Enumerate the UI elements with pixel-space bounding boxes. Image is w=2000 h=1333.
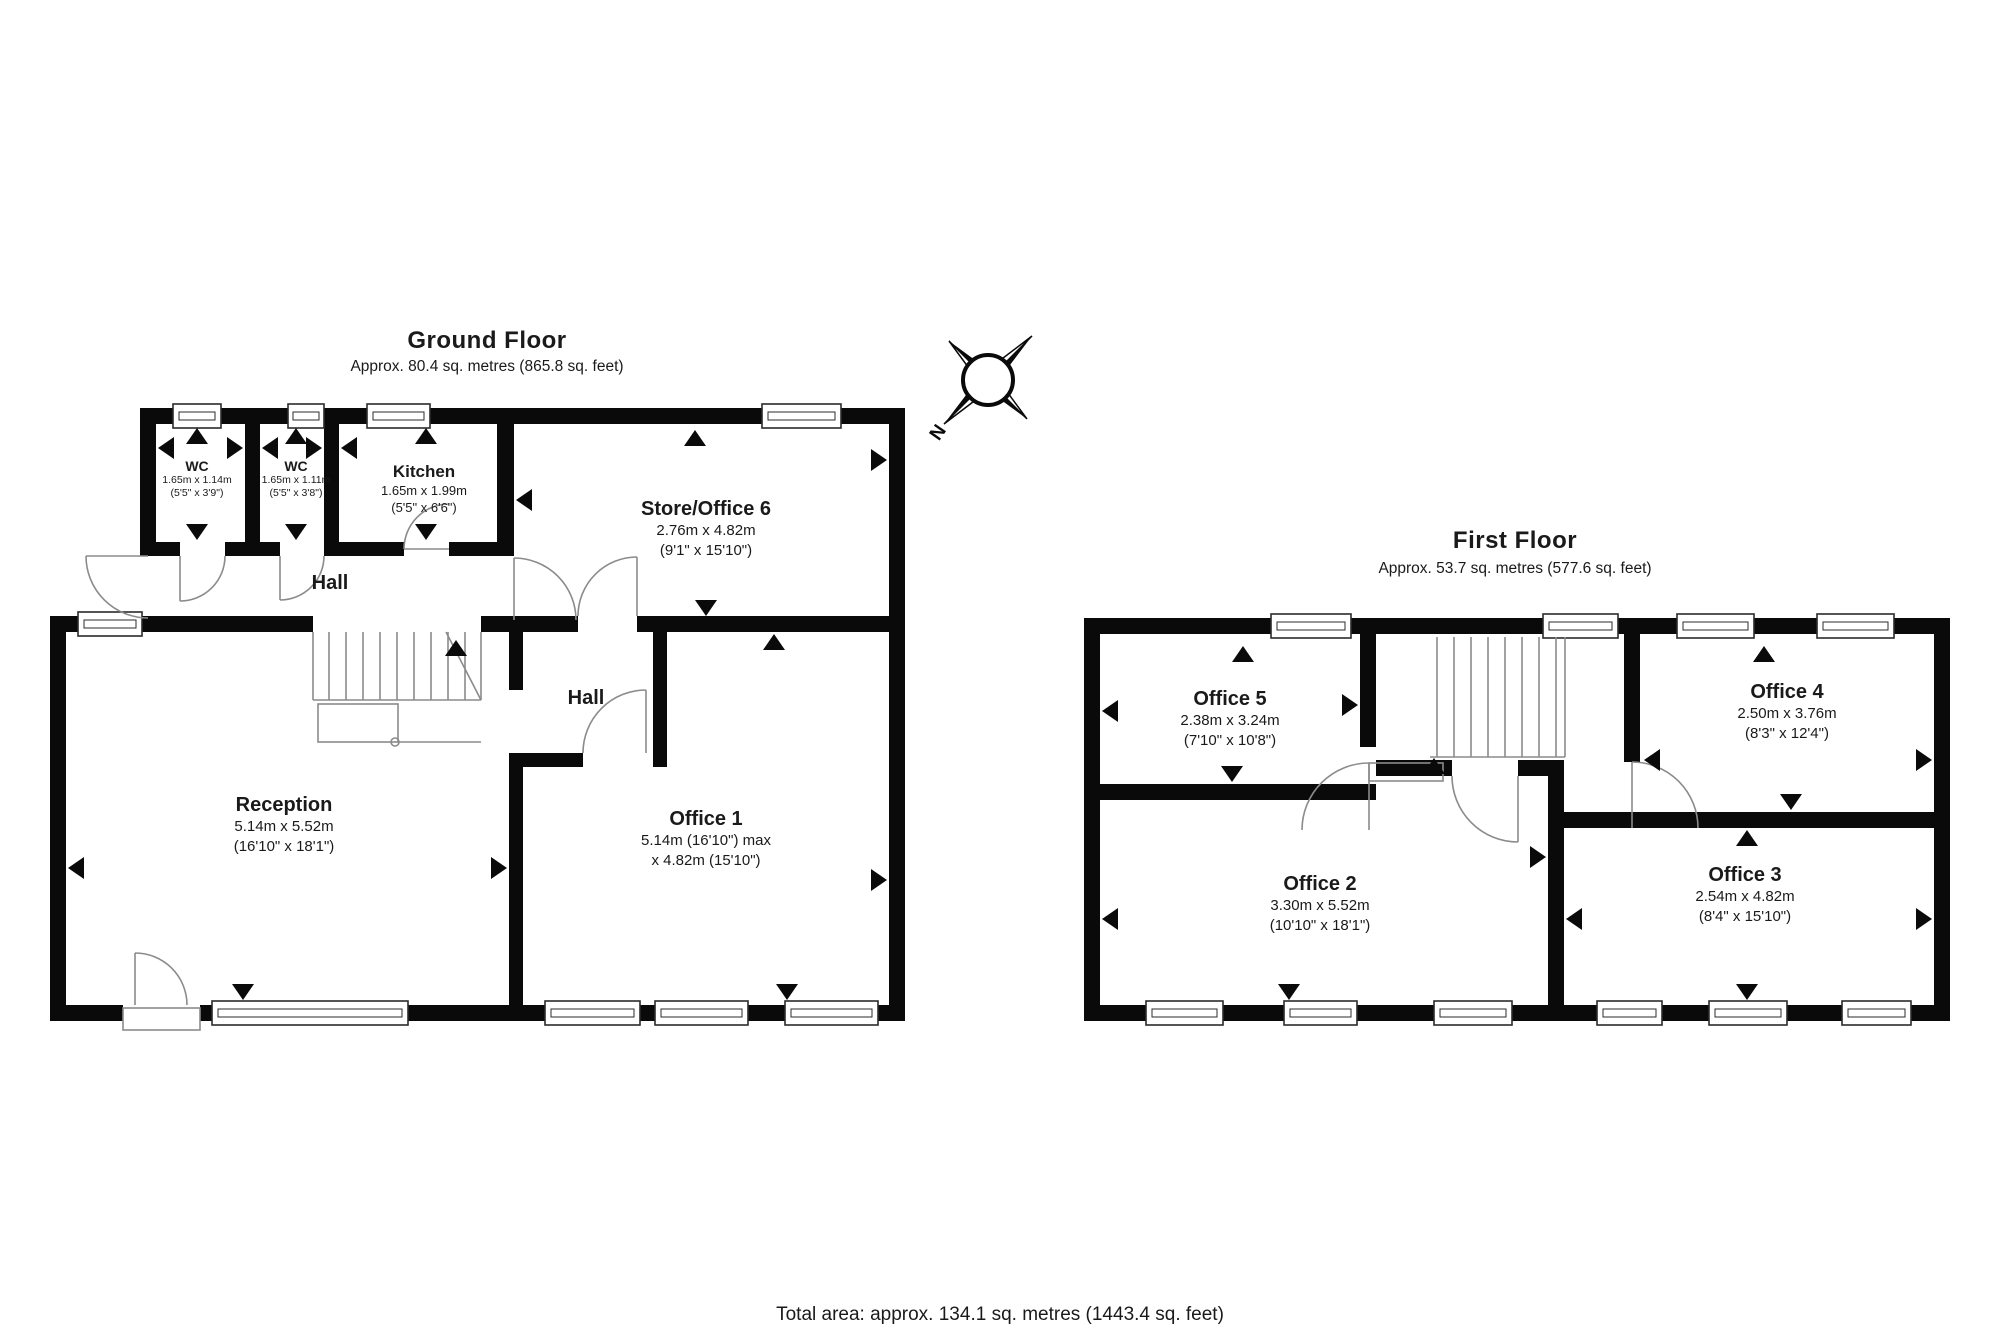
room-label-kitchen: Kitchen 1.65m x 1.99m (5'5" x 6'6")	[381, 462, 467, 516]
room-dims-metric: 2.38m x 3.24m	[1180, 711, 1279, 731]
room-label-office5: Office 5 2.38m x 3.24m (7'10" x 10'8")	[1180, 687, 1279, 751]
total-area-text: Total area: approx. 134.1 sq. metres (14…	[0, 1304, 2000, 1326]
hall-label-upper: Hall	[312, 572, 349, 595]
room-name: Office 2	[1270, 872, 1371, 896]
compass-icon: N	[926, 336, 1032, 444]
room-name: Office 3	[1695, 863, 1794, 887]
first-floor-doors	[1302, 762, 1698, 842]
room-dims-imperial: (5'5" x 3'8")	[262, 487, 331, 500]
room-dims-metric: 1.65m x 1.14m	[162, 474, 231, 487]
room-name: WC	[262, 459, 331, 474]
room-label-office2: Office 2 3.30m x 5.52m (10'10" x 18'1")	[1270, 872, 1371, 936]
first-floor-stairs-icon	[1369, 637, 1565, 781]
room-name: WC	[162, 459, 231, 474]
room-dims-imperial: (7'10" x 10'8")	[1180, 731, 1279, 751]
first-floor-subtitle: Approx. 53.7 sq. metres (577.6 sq. feet)	[1378, 560, 1651, 578]
room-label-office1: Office 1 5.14m (16'10") max x 4.82m (15'…	[641, 807, 771, 871]
room-dims-imperial: (5'5" x 3'9")	[162, 487, 231, 500]
room-label-office4: Office 4 2.50m x 3.76m (8'3" x 12'4")	[1737, 680, 1836, 744]
room-dims-metric: 5.14m x 5.52m	[234, 817, 335, 837]
hall-label-lower: Hall	[568, 687, 605, 710]
room-label-reception: Reception 5.14m x 5.52m (16'10" x 18'1")	[234, 793, 335, 857]
room-dims-imperial: (8'4" x 15'10")	[1695, 907, 1794, 927]
ground-floor-title: Ground Floor	[407, 327, 566, 355]
room-label-office3: Office 3 2.54m x 4.82m (8'4" x 15'10")	[1695, 863, 1794, 927]
room-name: Office 5	[1180, 687, 1279, 711]
room-dims-metric: 2.76m x 4.82m	[641, 521, 771, 541]
first-floor-title: First Floor	[1453, 527, 1577, 555]
room-dims-imperial: (10'10" x 18'1")	[1270, 916, 1371, 936]
room-dims-metric: 5.14m (16'10") max	[641, 831, 771, 851]
room-name: Office 1	[641, 807, 771, 831]
room-label-wc2: WC 1.65m x 1.11m (5'5" x 3'8")	[262, 459, 331, 500]
room-dims-metric: 3.30m x 5.52m	[1270, 896, 1371, 916]
first-floor-walls	[1084, 618, 1950, 1021]
compass-north-label: N	[926, 421, 951, 444]
ground-floor-subtitle: Approx. 80.4 sq. metres (865.8 sq. feet)	[350, 358, 623, 376]
room-dims-imperial: x 4.82m (15'10")	[641, 851, 771, 871]
room-dims-metric: 2.54m x 4.82m	[1695, 887, 1794, 907]
room-dims-metric: 1.65m x 1.99m	[381, 482, 467, 499]
room-label-wc1: WC 1.65m x 1.14m (5'5" x 3'9")	[162, 459, 231, 500]
room-dims-metric: 1.65m x 1.11m	[262, 474, 331, 487]
first-floor-plan	[1084, 614, 1950, 1025]
room-dims-imperial: (8'3" x 12'4")	[1737, 724, 1836, 744]
floorplan-drawing: N	[0, 0, 2000, 1333]
room-name: Kitchen	[381, 462, 467, 482]
room-dims-imperial: (16'10" x 18'1")	[234, 837, 335, 857]
room-dims-imperial: (9'1" x 15'10")	[641, 541, 771, 561]
room-name: Office 4	[1737, 680, 1836, 704]
room-dims-imperial: (5'5" x 6'6")	[381, 499, 467, 516]
floorplan-page: N Ground Floor Approx. 80.4 sq. metres (…	[0, 0, 2000, 1333]
room-dims-metric: 2.50m x 3.76m	[1737, 704, 1836, 724]
room-label-store-office6: Store/Office 6 2.76m x 4.82m (9'1" x 15'…	[641, 497, 771, 561]
room-name: Reception	[234, 793, 335, 817]
room-name: Store/Office 6	[641, 497, 771, 521]
